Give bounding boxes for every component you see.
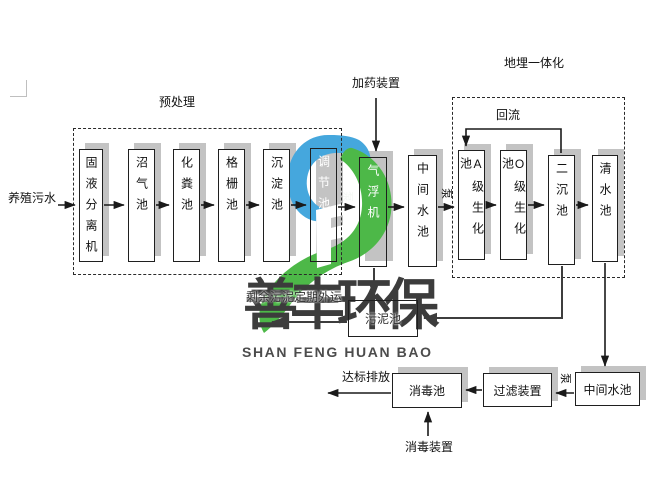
box-label: 沼气池	[136, 150, 148, 219]
box-regulating-pool: 调节池	[310, 148, 337, 262]
box-label: 调节池	[318, 149, 330, 218]
box-label: 二沉池	[556, 156, 568, 225]
box-disinfection-pool: 消毒池	[392, 373, 462, 408]
box-label: 化粪池	[181, 150, 193, 219]
discharge-label: 达标排放	[342, 371, 390, 385]
box-biogas-pool: 沼气池	[128, 149, 155, 262]
box-label: 污泥池	[365, 310, 401, 327]
box-label: 中间水池	[417, 156, 429, 246]
box-label: 过滤装置	[493, 382, 541, 399]
arrow-secondary-sludge	[424, 266, 562, 318]
box-label: O级生化池	[502, 151, 526, 259]
box-clear-water-pool: 清水池	[592, 155, 618, 262]
box-label: A级生化池	[460, 151, 484, 259]
disinfection-device-label: 消毒装置	[405, 441, 453, 455]
box-label: 清水池	[599, 156, 611, 225]
sludge-note-label: 剩余污泥定期外运	[246, 291, 342, 305]
box-label: 沉淀池	[271, 150, 283, 219]
pump-label-intermediate-top: 泵	[439, 188, 453, 200]
box-air-flotation-machine: 气浮机	[359, 157, 387, 267]
box-label: 固液分离机	[85, 150, 97, 261]
box-label: 气浮机	[367, 158, 379, 227]
box-label: 中间水池	[583, 381, 631, 398]
influent-label: 养殖污水	[8, 192, 56, 206]
box-label: 消毒池	[409, 382, 445, 399]
box-label: 格栅池	[226, 150, 238, 219]
box-sedimentation-pool: 沉淀池	[263, 149, 290, 262]
process-flow-diagram: 善丰环保 SHAN FENG HUAN BAO	[0, 0, 650, 500]
reflux-label: 回流	[496, 109, 520, 123]
pump-label-regulating: 泵	[340, 191, 354, 203]
box-solid-liquid-separator: 固液分离机	[79, 149, 103, 262]
box-o-biochemical-pool: O级生化池	[500, 150, 527, 260]
box-intermediate-pool-bottom: 中间水池	[575, 372, 640, 406]
buried-integration-label: 地埋一体化	[504, 57, 564, 71]
box-intermediate-pool-top: 中间水池	[408, 155, 437, 267]
box-septic-pool: 化粪池	[173, 149, 200, 262]
dosing-device-label: 加药装置	[352, 77, 400, 91]
pretreatment-label: 预处理	[159, 96, 195, 110]
box-sludge-pool: 污泥池	[348, 300, 418, 337]
pump-label-intermediate-bottom: 泵	[558, 373, 572, 385]
box-filter-device: 过滤装置	[483, 373, 552, 407]
box-a-biochemical-pool: A级生化池	[458, 150, 485, 260]
box-secondary-sedimentation-pool: 二沉池	[548, 155, 575, 265]
box-grille-pool: 格栅池	[218, 149, 245, 262]
